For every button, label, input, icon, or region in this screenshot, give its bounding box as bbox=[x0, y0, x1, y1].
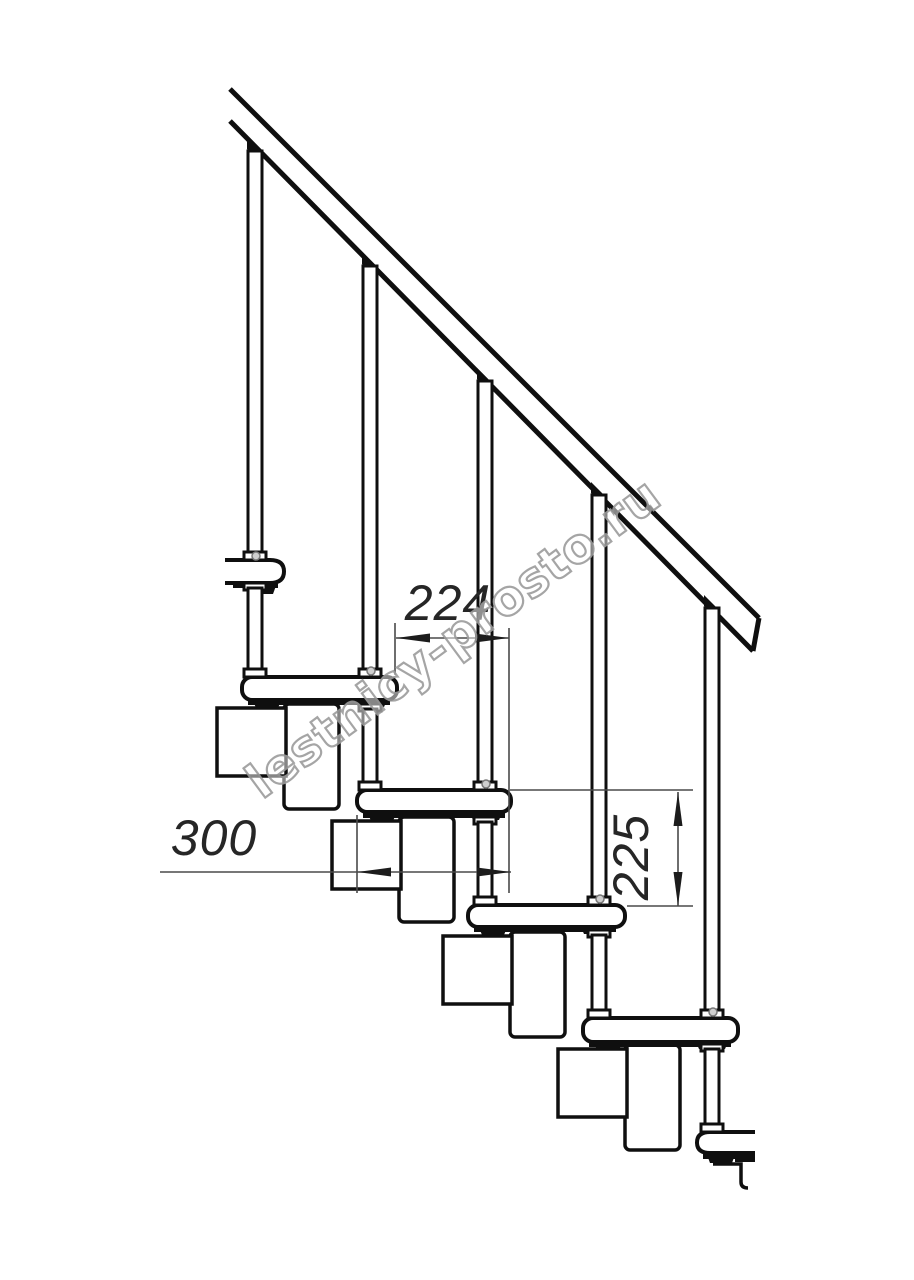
post-segment bbox=[244, 583, 266, 677]
post-tube bbox=[705, 1049, 719, 1124]
module-tube bbox=[399, 817, 454, 922]
post-flange bbox=[244, 669, 266, 677]
post-tube bbox=[363, 266, 377, 669]
post-segment bbox=[701, 595, 723, 1018]
tread-2 bbox=[357, 790, 511, 812]
post-flange bbox=[359, 782, 381, 790]
staircase-elevation-drawing: 224 300 225 lestnicy-prosto.ru bbox=[0, 0, 914, 1280]
module-box bbox=[558, 1049, 627, 1117]
handrail-top-edge bbox=[230, 89, 759, 618]
foot bbox=[706, 1152, 736, 1163]
post-flange bbox=[701, 1124, 723, 1132]
foot bbox=[367, 811, 397, 821]
tread-0 bbox=[225, 560, 284, 583]
post-tube bbox=[592, 935, 606, 1010]
post-tube bbox=[705, 608, 719, 1010]
handrail bbox=[230, 89, 759, 651]
tread-3 bbox=[468, 905, 625, 927]
bolt bbox=[482, 780, 490, 788]
post-flange bbox=[588, 1010, 610, 1018]
foot bbox=[593, 1040, 623, 1050]
post-segment bbox=[359, 253, 381, 677]
handrail-end-cap bbox=[753, 618, 759, 651]
foot bbox=[252, 698, 282, 708]
foot-block bbox=[735, 1152, 755, 1162]
module-box bbox=[443, 936, 512, 1004]
post-tube bbox=[248, 588, 262, 669]
post-segment bbox=[588, 930, 610, 1018]
dimension-value-300: 300 bbox=[171, 810, 257, 866]
post-tube bbox=[248, 151, 262, 552]
bolt bbox=[252, 552, 260, 560]
module-box bbox=[332, 821, 401, 889]
module-tube bbox=[510, 932, 565, 1037]
module-box-partial bbox=[713, 1164, 748, 1188]
arrowhead-right bbox=[477, 868, 511, 877]
bolt bbox=[709, 1008, 717, 1016]
arrowhead-down bbox=[674, 872, 683, 906]
arrowhead-up bbox=[674, 792, 683, 826]
post-segment bbox=[244, 138, 266, 560]
tread-5 bbox=[697, 1132, 755, 1153]
post-tube bbox=[478, 822, 492, 898]
dimension-value-225: 225 bbox=[603, 814, 659, 901]
module-tube bbox=[625, 1045, 680, 1150]
post-segment bbox=[474, 817, 496, 905]
post-flange bbox=[474, 897, 496, 905]
technical-drawing-canvas: 224 300 225 lestnicy-prosto.ru bbox=[0, 0, 914, 1280]
tread-4 bbox=[583, 1018, 738, 1042]
foot bbox=[478, 925, 508, 935]
post-segment bbox=[701, 1044, 723, 1132]
